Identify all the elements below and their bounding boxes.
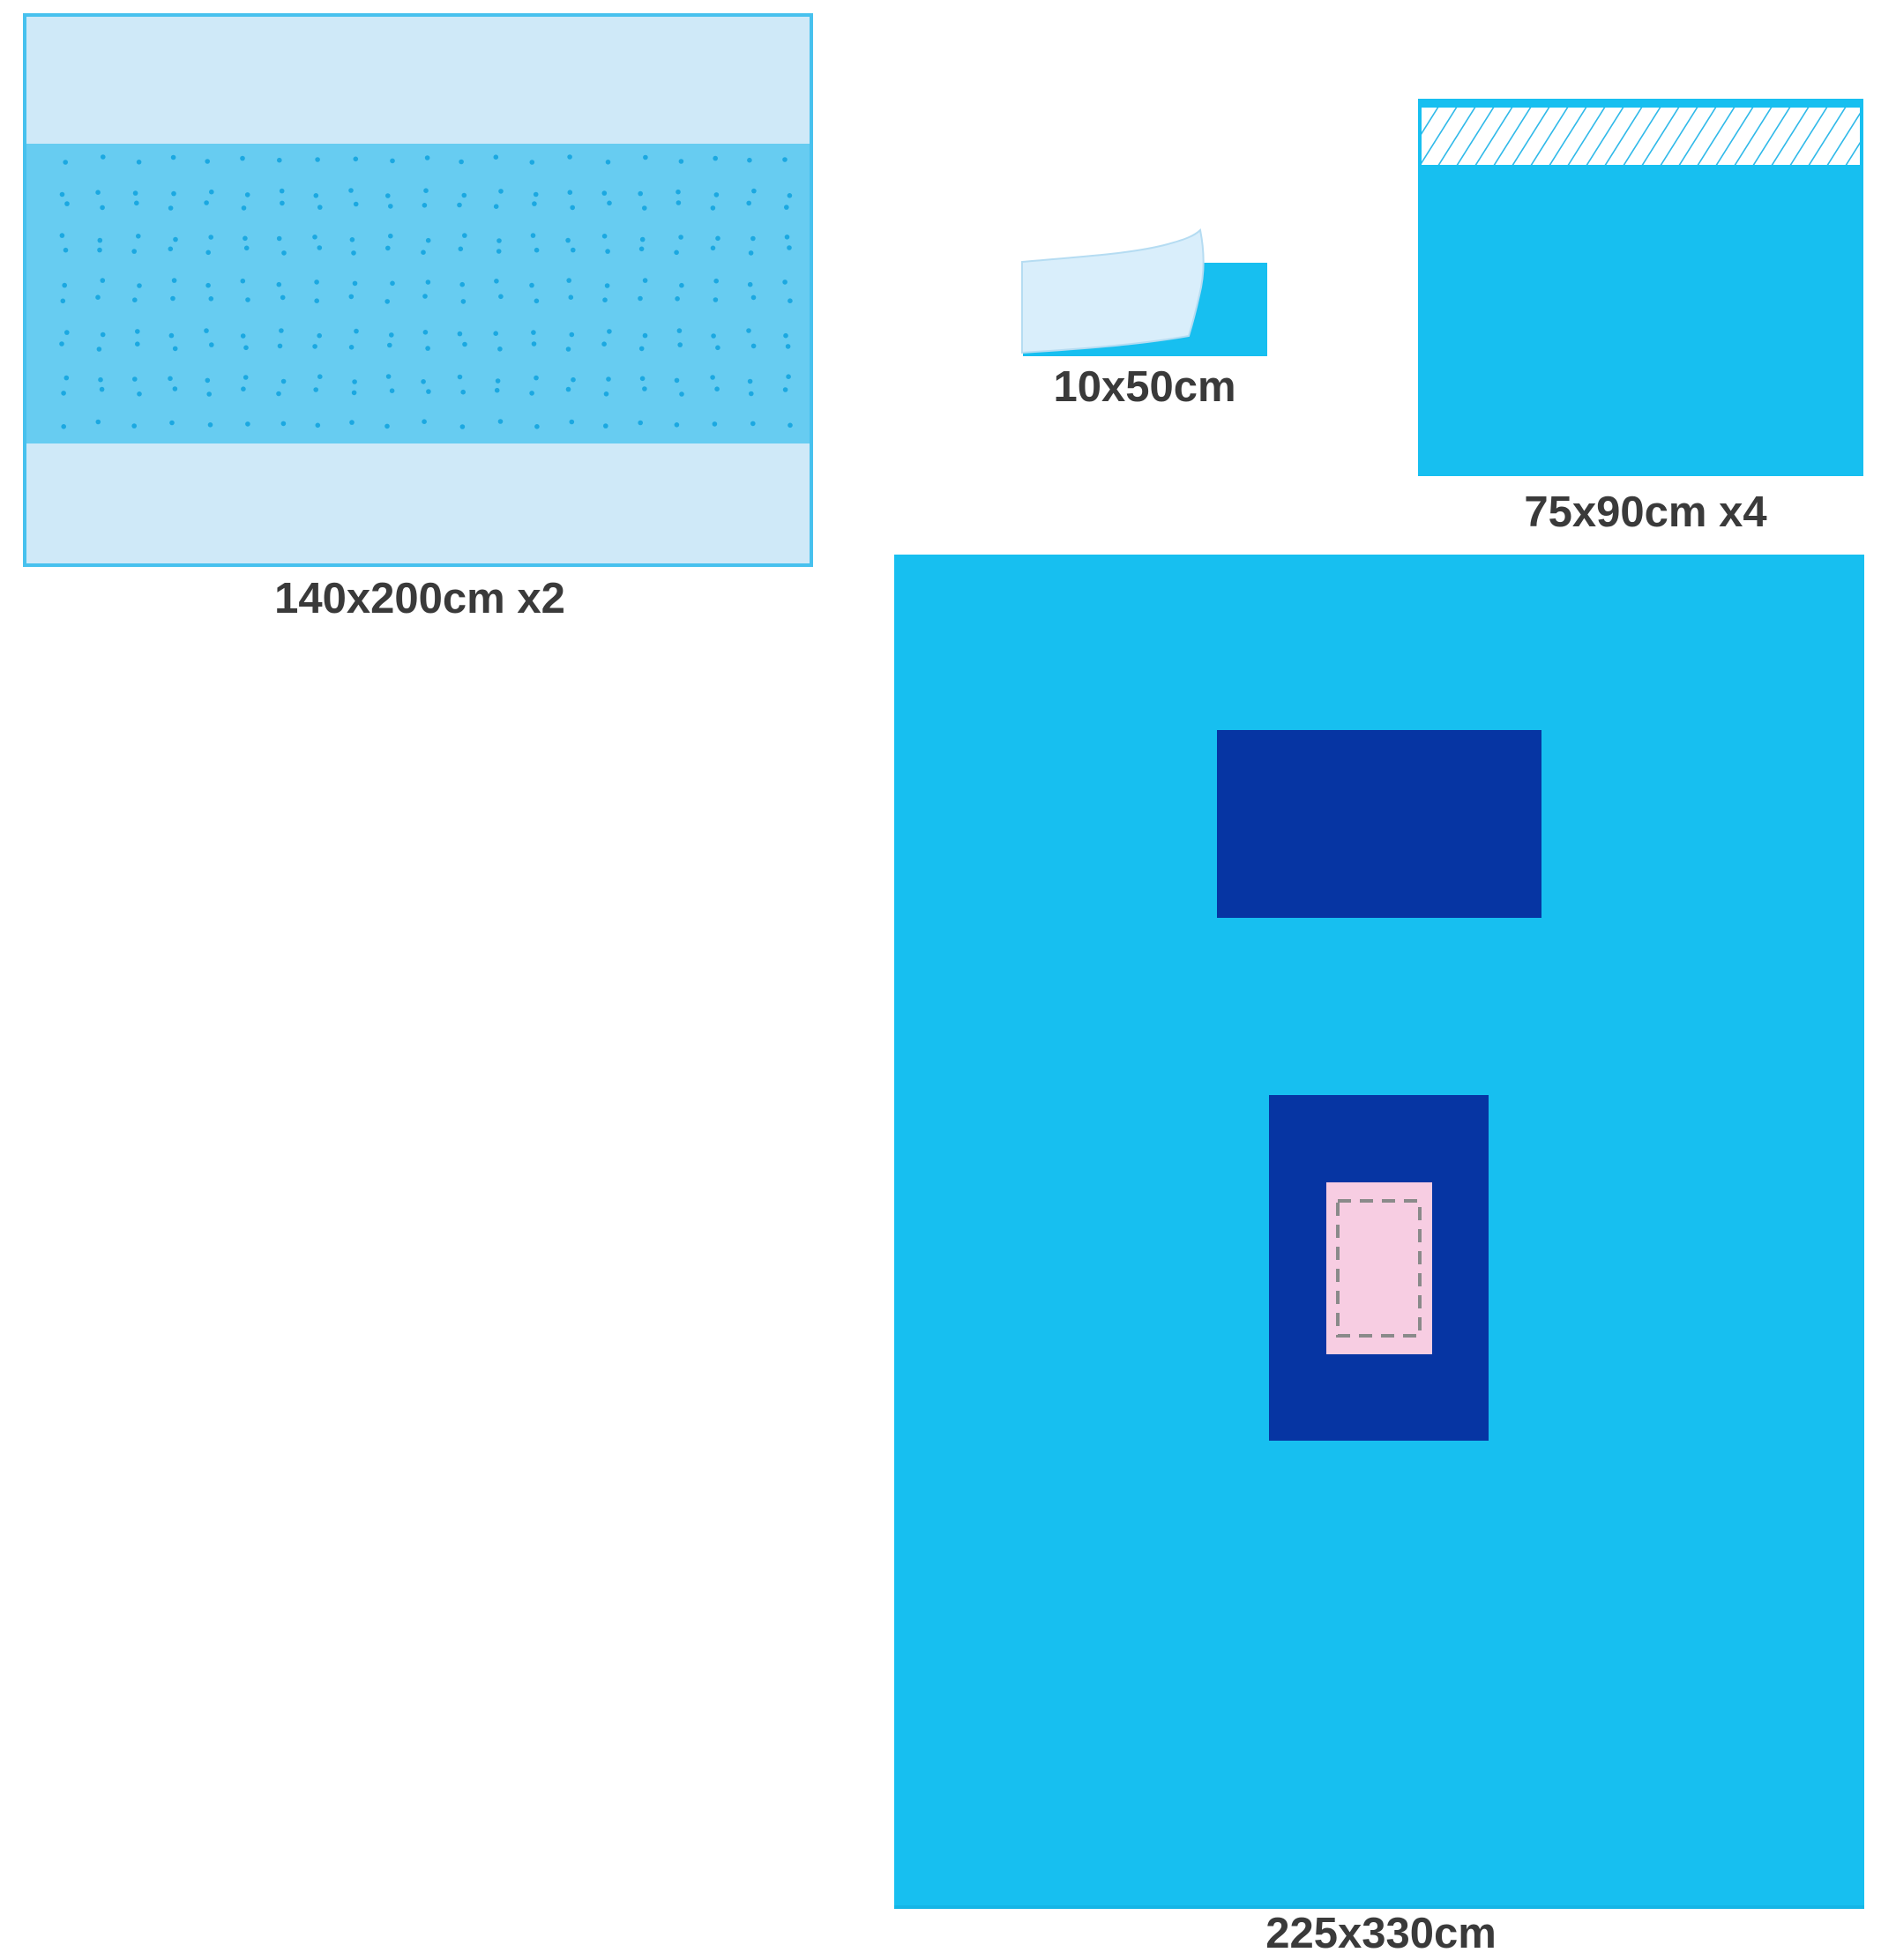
- perforation-dot: [100, 387, 105, 392]
- perforation-dot: [64, 201, 70, 206]
- drape-75x90: [1381, 99, 1896, 476]
- perforation-dot: [676, 200, 682, 205]
- perforation-dot: [605, 283, 610, 288]
- perforation-dot: [135, 329, 140, 334]
- perforation-dot: [711, 246, 716, 251]
- perforation-dot: [493, 331, 498, 336]
- perforation-dot: [136, 234, 141, 239]
- perforation-dot: [350, 237, 355, 242]
- perforation-dot: [279, 328, 284, 333]
- perforation-dot: [171, 191, 176, 197]
- perforation-dot: [63, 248, 69, 253]
- perforation-dot: [137, 283, 142, 288]
- perforation-dot: [496, 249, 502, 254]
- perforation-dot: [529, 391, 534, 396]
- perforation-dot: [312, 235, 317, 240]
- perforation-dot: [534, 248, 540, 253]
- perforation-dot: [245, 192, 250, 197]
- perforation-dot: [421, 250, 426, 255]
- perforation-dot: [312, 344, 317, 349]
- perforation-dot: [458, 332, 463, 337]
- perforation-dot: [787, 245, 792, 250]
- perforation-dot: [607, 201, 612, 206]
- perforation-dot: [243, 375, 249, 380]
- perforation-dot: [532, 341, 537, 347]
- perforation-dot: [675, 422, 680, 428]
- perforation-dot: [642, 386, 647, 391]
- perforation-dot: [281, 421, 287, 427]
- perforation-dot: [173, 386, 178, 391]
- perforation-dot: [314, 279, 319, 285]
- perforation-dot: [387, 343, 392, 348]
- surgical-drape-pack-diagram: 140x200cm x2 10x50cm 75x90cm x4 225x330c…: [0, 0, 1896, 1960]
- perforation-dot: [132, 297, 138, 302]
- perforation-dot: [240, 156, 245, 161]
- perforation-dot: [280, 295, 286, 301]
- perforation-dot: [751, 295, 757, 301]
- strip-10x50-release-liner: [1022, 230, 1204, 353]
- perforation-dot: [98, 377, 103, 383]
- perforation-dot: [388, 234, 393, 239]
- perforation-dot: [751, 344, 757, 349]
- perforation-dot: [422, 419, 427, 424]
- perforation-dot: [97, 248, 102, 253]
- perforation-dot: [677, 342, 683, 347]
- perforation-dot: [349, 294, 355, 300]
- perforation-dot: [786, 344, 791, 349]
- perforation-dot: [568, 190, 573, 195]
- perforation-dot: [746, 201, 751, 206]
- perforation-dot: [64, 376, 70, 381]
- perforation-dot: [277, 158, 282, 163]
- perforation-dot: [640, 376, 646, 382]
- perforation-dot: [607, 329, 612, 334]
- perforation-dot: [61, 299, 66, 304]
- perforation-dot: [352, 379, 357, 384]
- perforation-dot: [137, 160, 142, 165]
- perforation-dot: [494, 154, 499, 160]
- drape-140x200-absorbent-band: [26, 144, 810, 443]
- perforation-dot: [494, 279, 499, 284]
- perforation-dot: [494, 204, 499, 209]
- perforation-dot: [348, 188, 354, 193]
- perforation-dot: [571, 377, 576, 383]
- perforation-dot: [314, 298, 319, 303]
- perforation-dot: [169, 333, 175, 339]
- perforation-dot: [353, 281, 358, 287]
- perforation-dot: [495, 388, 500, 393]
- hatch-line: [1381, 104, 1422, 168]
- perforation-dot: [100, 205, 105, 211]
- perforation-dot: [316, 423, 321, 429]
- perforation-dot: [534, 192, 539, 197]
- perforation-dot: [788, 193, 793, 198]
- perforation-dot: [677, 328, 683, 333]
- perforation-dot: [498, 294, 504, 300]
- perforation-dot: [601, 341, 607, 347]
- perforation-dot: [496, 238, 502, 243]
- perforation-dot: [566, 347, 571, 352]
- perforation-dot: [496, 378, 501, 384]
- perforation-dot: [133, 190, 138, 196]
- perforation-dot: [208, 422, 213, 428]
- perforation-dot: [749, 250, 754, 256]
- perforation-dot: [315, 157, 320, 162]
- perforation-dot: [354, 157, 359, 162]
- perforation-dot: [782, 279, 788, 285]
- perforation-dot: [567, 154, 572, 160]
- perforation-dot: [390, 281, 395, 287]
- drape-225x330-reinforcement-upper: [1217, 730, 1541, 918]
- perforation-dot: [241, 333, 246, 339]
- perforation-dot: [642, 205, 647, 211]
- perforation-dot: [674, 250, 679, 256]
- perforation-dot: [317, 333, 322, 339]
- perforation-dot: [245, 297, 250, 302]
- perforation-dot: [458, 375, 463, 380]
- perforation-dot: [277, 236, 282, 242]
- perforation-dot: [643, 155, 648, 160]
- perforation-dot: [675, 378, 680, 384]
- perforation-dot: [639, 347, 645, 352]
- perforation-dot: [565, 238, 571, 243]
- perforation-dot: [461, 299, 467, 304]
- diagram-canvas: [0, 0, 1896, 1960]
- perforation-dot: [205, 250, 211, 256]
- perforation-dot: [61, 424, 66, 429]
- perforation-dot: [384, 299, 390, 304]
- perforation-dot: [426, 238, 431, 243]
- perforation-dot: [95, 190, 101, 195]
- perforation-dot: [281, 379, 287, 384]
- perforation-dot: [459, 282, 465, 287]
- perforation-dot: [61, 391, 66, 396]
- perforation-dot: [638, 421, 643, 426]
- perforation-dot: [603, 423, 608, 429]
- strip-10x50: [1022, 230, 1267, 356]
- perforation-dot: [313, 387, 318, 392]
- perforation-dot: [605, 249, 610, 254]
- perforation-dot: [788, 423, 793, 429]
- perforation-dot: [569, 294, 574, 300]
- perforation-dot: [131, 423, 137, 429]
- label-strip-10x50: 10x50cm: [836, 362, 1453, 412]
- perforation-dot: [570, 332, 575, 338]
- perforation-dot: [137, 391, 142, 397]
- perforation-dot: [529, 283, 534, 288]
- perforation-dot: [173, 237, 178, 242]
- perforation-dot: [643, 278, 648, 283]
- perforation-dot: [675, 296, 680, 302]
- perforation-dot: [423, 330, 429, 335]
- perforation-dot: [460, 390, 466, 395]
- perforation-dot: [242, 205, 247, 211]
- perforation-dot: [205, 283, 211, 288]
- perforation-dot: [783, 387, 788, 392]
- perforation-dot: [713, 297, 719, 302]
- perforation-dot: [715, 236, 720, 242]
- perforation-dot: [602, 234, 608, 239]
- perforation-dot: [277, 282, 282, 287]
- perforation-dot: [171, 155, 176, 160]
- drape-225x330-incise-film: [1326, 1182, 1432, 1354]
- perforation-dot: [748, 282, 753, 287]
- perforation-dot: [422, 294, 428, 299]
- perforation-dot: [676, 190, 681, 195]
- perforation-dot: [170, 296, 175, 302]
- perforation-dot: [241, 279, 246, 284]
- perforation-dot: [204, 328, 209, 333]
- perforation-dot: [570, 205, 575, 211]
- perforation-dot: [566, 387, 571, 392]
- perforation-dot: [751, 189, 757, 194]
- perforation-dot: [243, 346, 249, 351]
- perforation-dot: [384, 424, 390, 429]
- perforation-dot: [135, 341, 140, 347]
- perforation-dot: [385, 246, 391, 251]
- perforation-dot: [317, 205, 323, 210]
- perforation-dot: [457, 203, 462, 208]
- perforation-dot: [640, 237, 646, 242]
- perforation-dot: [531, 233, 536, 238]
- perforation-dot: [173, 347, 178, 352]
- perforation-dot: [245, 421, 250, 427]
- perforation-dot: [715, 346, 720, 351]
- perforation-dot: [209, 190, 214, 195]
- perforation-dot: [244, 246, 250, 251]
- perforation-dot: [532, 201, 537, 206]
- perforation-dot: [168, 247, 174, 252]
- perforation-dot: [206, 391, 212, 397]
- perforation-dot: [643, 333, 648, 339]
- perforation-dot: [426, 389, 431, 394]
- perforation-dot: [101, 332, 106, 338]
- perforation-dot: [566, 278, 571, 283]
- perforation-dot: [426, 279, 431, 285]
- perforation-dot: [209, 342, 214, 347]
- perforation-dot: [95, 294, 101, 300]
- perforation-dot: [205, 378, 211, 384]
- perforation-dot: [606, 160, 611, 165]
- perforation-dot: [710, 375, 715, 380]
- label-drape-75x90: 75x90cm x4: [1337, 488, 1896, 537]
- perforation-dot: [679, 283, 684, 288]
- perforation-dot: [748, 379, 753, 384]
- perforation-dot: [638, 191, 643, 197]
- perforation-dot: [534, 424, 540, 429]
- perforation-dot: [317, 374, 323, 379]
- perforation-dot: [390, 388, 395, 393]
- label-drape-225x330: 225x330cm: [1072, 1909, 1690, 1958]
- perforation-dot: [168, 205, 174, 211]
- perforation-dot: [98, 238, 103, 243]
- perforation-dot: [280, 201, 285, 206]
- perforation-dot: [498, 419, 504, 424]
- perforation-dot: [425, 346, 430, 351]
- perforation-dot: [354, 329, 359, 334]
- perforation-dot: [422, 203, 428, 208]
- perforation-dot: [714, 192, 720, 197]
- perforation-dot: [386, 374, 392, 379]
- perforation-dot: [281, 250, 287, 256]
- perforation-dot: [97, 347, 102, 352]
- perforation-dot: [570, 420, 575, 425]
- perforation-dot: [60, 233, 65, 238]
- perforation-dot: [241, 386, 246, 391]
- perforation-dot: [713, 279, 719, 284]
- perforation-dot: [389, 332, 394, 338]
- perforation-dot: [713, 421, 718, 427]
- perforation-dot: [784, 205, 789, 210]
- hatch-line: [1862, 104, 1896, 168]
- perforation-dot: [134, 201, 139, 206]
- drape-225x330: [894, 555, 1864, 1909]
- perforation-dot: [243, 236, 248, 242]
- perforation-dot: [60, 192, 65, 197]
- perforation-dot: [351, 250, 356, 256]
- perforation-dot: [64, 330, 70, 335]
- perforation-dot: [459, 160, 464, 165]
- perforation-dot: [746, 328, 751, 333]
- perforation-dot: [423, 188, 429, 193]
- perforation-dot: [280, 189, 285, 194]
- perforation-dot: [204, 200, 209, 205]
- perforation-dot: [531, 330, 536, 335]
- perforation-dot: [602, 190, 608, 196]
- perforation-dot: [602, 297, 608, 302]
- perforation-dot: [530, 160, 535, 165]
- perforation-dot: [750, 421, 756, 427]
- perforation-dot: [63, 160, 68, 165]
- perforation-dot: [462, 233, 467, 238]
- perforation-dot: [497, 347, 503, 352]
- perforation-dot: [460, 424, 466, 429]
- perforation-dot: [314, 193, 319, 198]
- perforation-dot: [349, 420, 355, 425]
- perforation-dot: [208, 235, 213, 240]
- perforation-dot: [679, 391, 684, 397]
- drape-140x200: [25, 15, 811, 565]
- perforation-dot: [678, 235, 683, 240]
- perforation-dot: [385, 193, 391, 198]
- perforation-dot: [209, 296, 214, 302]
- perforation-dot: [59, 341, 64, 347]
- perforation-dot: [101, 154, 106, 160]
- perforation-dot: [786, 374, 791, 379]
- perforation-dot: [639, 247, 645, 252]
- perforation-dot: [390, 159, 395, 164]
- perforation-dot: [534, 376, 539, 381]
- perforation-dot: [785, 235, 790, 240]
- perforation-dot: [96, 420, 101, 425]
- perforation-dot: [278, 344, 283, 349]
- perforation-dot: [172, 278, 177, 283]
- perforation-dot: [713, 156, 718, 161]
- perforation-dot: [750, 236, 756, 242]
- perforation-dot: [714, 386, 720, 391]
- label-drape-140x200: 140x200cm x2: [111, 574, 728, 623]
- perforation-dot: [749, 391, 754, 397]
- perforation-dot: [354, 202, 359, 207]
- perforation-dot: [205, 159, 210, 164]
- perforation-dot: [169, 421, 175, 426]
- perforation-dot: [317, 245, 323, 250]
- perforation-dot: [459, 247, 464, 252]
- perforation-dot: [782, 157, 788, 162]
- perforation-dot: [132, 376, 138, 382]
- perforation-dot: [421, 379, 426, 384]
- perforation-dot: [534, 299, 540, 304]
- perforation-dot: [388, 204, 393, 209]
- perforation-dot: [679, 159, 684, 164]
- perforation-dot: [131, 249, 137, 254]
- perforation-dot: [276, 391, 281, 397]
- perforation-dot: [462, 342, 467, 347]
- perforation-dot: [349, 345, 355, 350]
- perforation-dot: [783, 333, 788, 339]
- perforation-dot: [788, 298, 793, 303]
- perforation-dot: [462, 193, 467, 198]
- perforation-dot: [62, 283, 67, 288]
- perforation-dot: [711, 333, 716, 339]
- perforation-dot: [425, 155, 430, 160]
- perforation-dot: [571, 248, 576, 253]
- perforation-dot: [747, 158, 752, 163]
- perforation-dot: [604, 391, 609, 397]
- perforation-dot: [711, 205, 716, 211]
- perforation-dot: [638, 296, 643, 302]
- perforation-dot: [606, 376, 611, 382]
- perforation-dot: [168, 376, 173, 382]
- perforation-dot: [352, 391, 357, 396]
- perforation-dot: [101, 278, 106, 283]
- perforation-dot: [498, 189, 504, 194]
